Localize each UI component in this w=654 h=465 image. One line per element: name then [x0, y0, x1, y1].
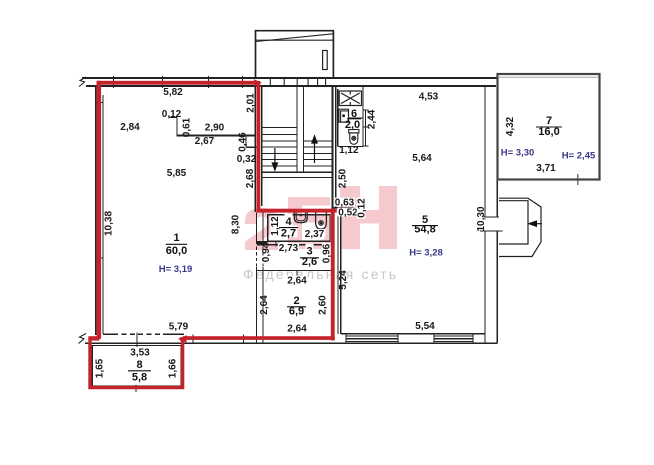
svg-text:5,64: 5,64	[412, 153, 432, 164]
svg-text:2,68: 2,68	[245, 168, 256, 188]
svg-text:16,0: 16,0	[538, 126, 559, 138]
svg-text:2,84: 2,84	[120, 122, 140, 133]
svg-text:3,53: 3,53	[130, 347, 150, 358]
svg-text:2,44: 2,44	[367, 109, 378, 129]
svg-text:5,8: 5,8	[132, 371, 147, 383]
svg-text:2,0: 2,0	[345, 119, 360, 131]
svg-text:5,54: 5,54	[415, 321, 435, 332]
svg-text:8,30: 8,30	[230, 214, 241, 234]
svg-text:1,12: 1,12	[339, 145, 359, 156]
svg-text:2,64: 2,64	[287, 323, 307, 334]
svg-text:6,9: 6,9	[289, 305, 304, 317]
svg-text:H= 3,30: H= 3,30	[501, 148, 535, 159]
svg-text:3,71: 3,71	[536, 163, 556, 174]
svg-text:2,90: 2,90	[205, 122, 225, 133]
svg-text:60,0: 60,0	[166, 245, 187, 257]
svg-text:0,94: 0,94	[261, 242, 272, 262]
svg-text:1,12: 1,12	[270, 216, 281, 236]
svg-text:0,46: 0,46	[237, 132, 248, 152]
svg-text:2,01: 2,01	[246, 93, 257, 113]
svg-text:2,50: 2,50	[338, 168, 349, 188]
svg-text:0,32: 0,32	[237, 154, 257, 165]
svg-text:1: 1	[173, 232, 179, 244]
svg-text:1,66: 1,66	[167, 358, 178, 378]
svg-text:2,7: 2,7	[281, 227, 296, 239]
svg-text:54,8: 54,8	[414, 224, 435, 236]
svg-text:10,38: 10,38	[103, 211, 114, 236]
svg-text:2,37: 2,37	[305, 229, 325, 240]
svg-text:H= 2,45: H= 2,45	[562, 151, 596, 162]
svg-text:2,67: 2,67	[195, 136, 215, 147]
svg-text:2,64: 2,64	[259, 295, 270, 315]
svg-text:5,85: 5,85	[167, 168, 187, 179]
svg-text:2,60: 2,60	[318, 295, 329, 315]
svg-text:4: 4	[285, 216, 292, 228]
svg-text:0,12: 0,12	[162, 109, 182, 120]
svg-text:4,32: 4,32	[505, 116, 516, 136]
svg-text:H= 3,28: H= 3,28	[409, 248, 443, 259]
svg-text:H= 3,19: H= 3,19	[159, 264, 193, 275]
svg-text:5,24: 5,24	[338, 270, 349, 290]
svg-text:0,61: 0,61	[181, 117, 192, 137]
svg-text:Федеральная сеть: Федеральная сеть	[243, 266, 398, 282]
svg-text:0,12: 0,12	[356, 198, 367, 218]
svg-text:2,6: 2,6	[302, 256, 317, 268]
svg-text:10,30: 10,30	[476, 206, 487, 231]
svg-text:5,79: 5,79	[169, 321, 189, 332]
svg-text:4,53: 4,53	[419, 91, 439, 102]
svg-text:5,82: 5,82	[163, 87, 183, 98]
svg-text:2,64: 2,64	[287, 275, 307, 286]
svg-text:1,65: 1,65	[95, 358, 106, 378]
svg-text:8: 8	[136, 359, 142, 371]
svg-text:2,73: 2,73	[279, 243, 299, 254]
svg-text:0,52: 0,52	[338, 207, 358, 218]
